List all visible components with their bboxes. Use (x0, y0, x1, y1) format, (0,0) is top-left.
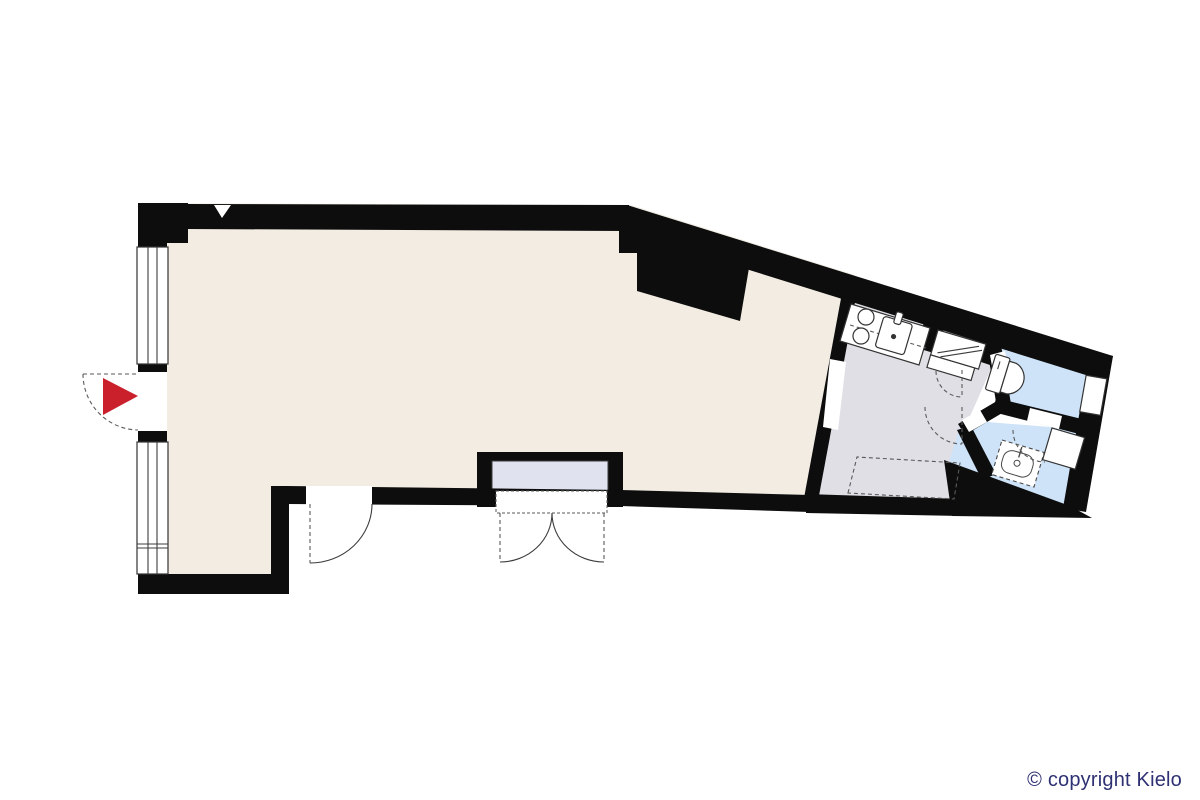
vestibule-floor (492, 461, 608, 492)
cooktop-burner-2 (853, 328, 869, 344)
floorplan-page: © copyright Kielo (0, 0, 1200, 800)
door-opening-bottom-left (306, 486, 372, 505)
entrance-opening (138, 372, 167, 431)
entrance-arrow (103, 378, 138, 415)
floorplan-drawing (0, 0, 1200, 800)
double-door-threshold (496, 491, 607, 513)
double-door (500, 513, 604, 562)
window-lower (137, 442, 168, 574)
wall-top (185, 204, 629, 231)
cooktop-burner-1 (858, 309, 874, 325)
single-door-bottom-left (310, 504, 372, 563)
copyright-text: © copyright Kielo (1027, 769, 1182, 792)
window-upper (137, 247, 168, 364)
wall-bottom-left (138, 574, 289, 594)
